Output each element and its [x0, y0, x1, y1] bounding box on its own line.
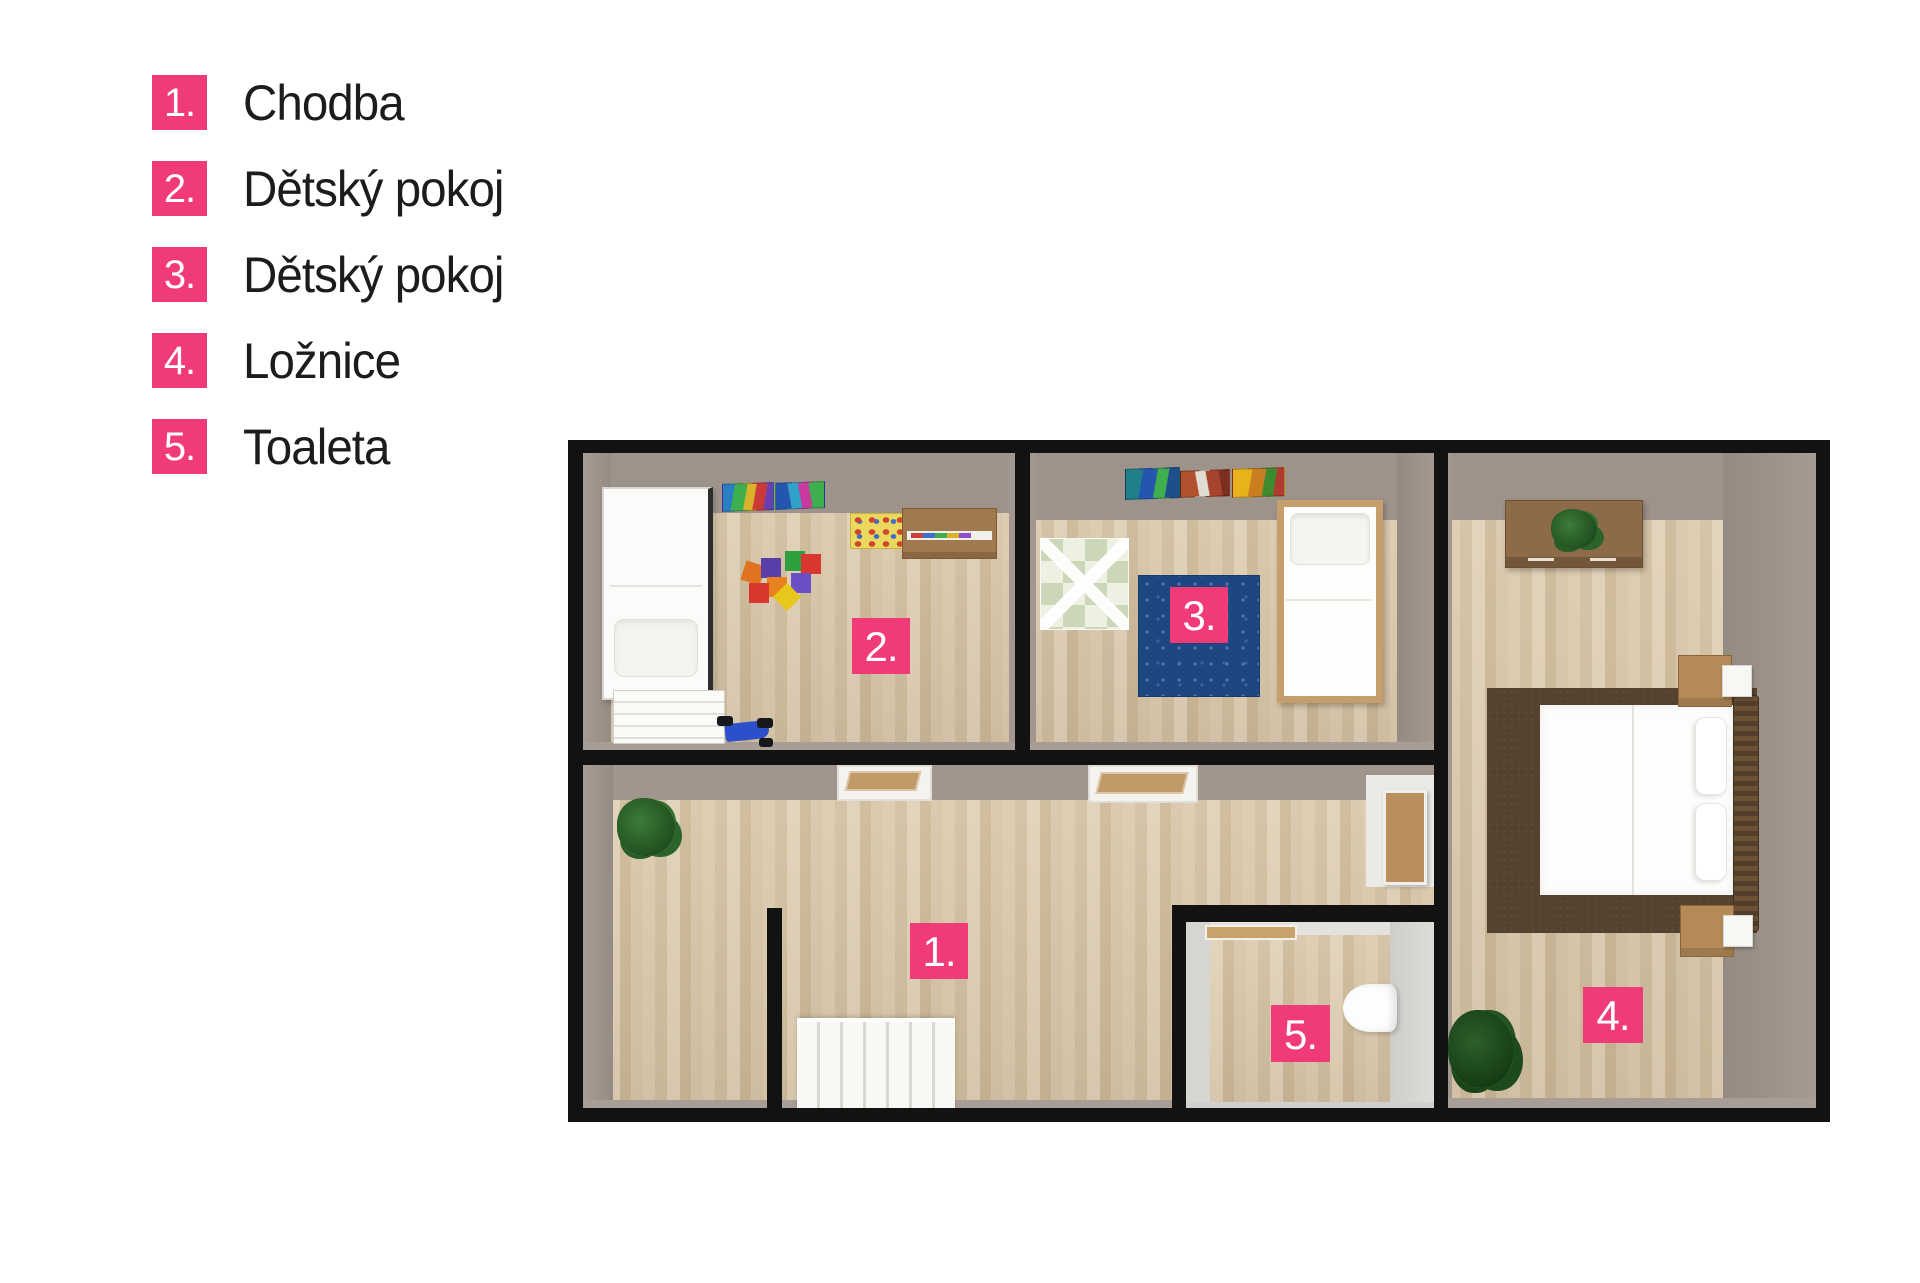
block	[761, 558, 781, 578]
wall-room2-room3	[1015, 453, 1030, 750]
blanket-fold	[610, 585, 702, 587]
plant	[1448, 1010, 1514, 1088]
poster	[775, 481, 825, 510]
pillow	[1290, 513, 1370, 565]
pillow	[614, 619, 698, 677]
toy-car	[717, 716, 775, 746]
wall-hallway-top	[583, 750, 1434, 765]
pillow	[1695, 803, 1727, 881]
room-toilet: 5.	[1186, 922, 1434, 1108]
room-marker-5: 5.	[1271, 1005, 1330, 1062]
toy-box	[850, 513, 905, 549]
wall-face	[1030, 453, 1036, 750]
wall-face	[1448, 453, 1452, 1108]
wall-face	[1030, 742, 1434, 750]
wall-face	[1186, 922, 1210, 1108]
wall-face	[583, 765, 613, 1108]
room-marker-3: 3.	[1170, 587, 1228, 643]
room-bedroom: 4.	[1448, 453, 1816, 1108]
blanket-fold	[1632, 705, 1634, 895]
wall-face	[583, 765, 1434, 800]
dresser-handle	[1590, 558, 1616, 561]
legend-label-detsky-pokoj-2: Dětský pokoj	[243, 247, 504, 302]
dresser	[1505, 500, 1643, 568]
room-marker-2: 2.	[852, 618, 910, 674]
legend-label-loznice: Ložnice	[243, 333, 400, 388]
door-opening	[1088, 765, 1198, 803]
dresser-handle	[1528, 558, 1554, 561]
single-bed	[602, 487, 713, 700]
legend-badge-4: 4.	[152, 333, 207, 388]
wall-room3-bedroom	[1434, 453, 1448, 1108]
bookshelf	[902, 508, 997, 559]
page: 1. Chodba 2. Dětský pokoj 3. Dětský poko…	[0, 0, 1920, 1283]
toy-car-wheel	[717, 716, 733, 726]
double-bed	[1540, 705, 1733, 895]
door	[845, 771, 922, 791]
toy-blocks	[743, 551, 819, 607]
wall-face	[1397, 453, 1434, 750]
legend-badge-5: 5.	[152, 419, 207, 474]
single-bed	[1277, 500, 1383, 703]
block	[801, 554, 821, 574]
room-children-2: 3.	[1030, 453, 1434, 750]
toy-car-wheel	[759, 738, 773, 747]
legend-label-toaleta: Toaleta	[243, 419, 390, 474]
floor-plan: 2. 3.	[568, 440, 1830, 1122]
poster	[722, 482, 774, 512]
poster	[1232, 467, 1285, 498]
door	[1095, 772, 1188, 794]
toy-car-wheel	[757, 718, 773, 728]
door-opening	[837, 765, 932, 801]
door-mat	[1205, 925, 1297, 940]
legend-label-detsky-pokoj-1: Dětský pokoj	[243, 161, 504, 216]
room-marker-4: 4.	[1583, 987, 1643, 1043]
lamp	[1723, 915, 1753, 947]
chest-of-drawers	[613, 690, 725, 744]
room-children-1: 2.	[583, 453, 1015, 750]
room-marker-1: 1.	[910, 923, 968, 979]
plant	[1551, 509, 1597, 549]
books	[911, 533, 971, 538]
poster	[1125, 467, 1180, 500]
wall-face	[1448, 1098, 1816, 1108]
block	[749, 583, 769, 603]
legend-label-chodba: Chodba	[243, 75, 404, 130]
play-mat	[1040, 538, 1129, 630]
wall-toilet-left	[1172, 905, 1186, 1108]
headboard	[1733, 695, 1759, 932]
legend-badge-2: 2.	[152, 161, 207, 216]
toilet	[1343, 984, 1397, 1032]
lamp	[1722, 665, 1752, 697]
pillow	[1695, 717, 1727, 795]
door	[1383, 790, 1427, 885]
plant	[617, 798, 675, 856]
wall-face	[1186, 1102, 1434, 1108]
blanket-fold	[1286, 599, 1372, 601]
wall-stair-stub	[767, 908, 782, 1108]
wall-toilet-top	[1172, 905, 1448, 922]
legend-badge-1: 1.	[152, 75, 207, 130]
stairs	[797, 1018, 955, 1108]
poster	[1180, 469, 1230, 498]
legend-badge-3: 3.	[152, 247, 207, 302]
